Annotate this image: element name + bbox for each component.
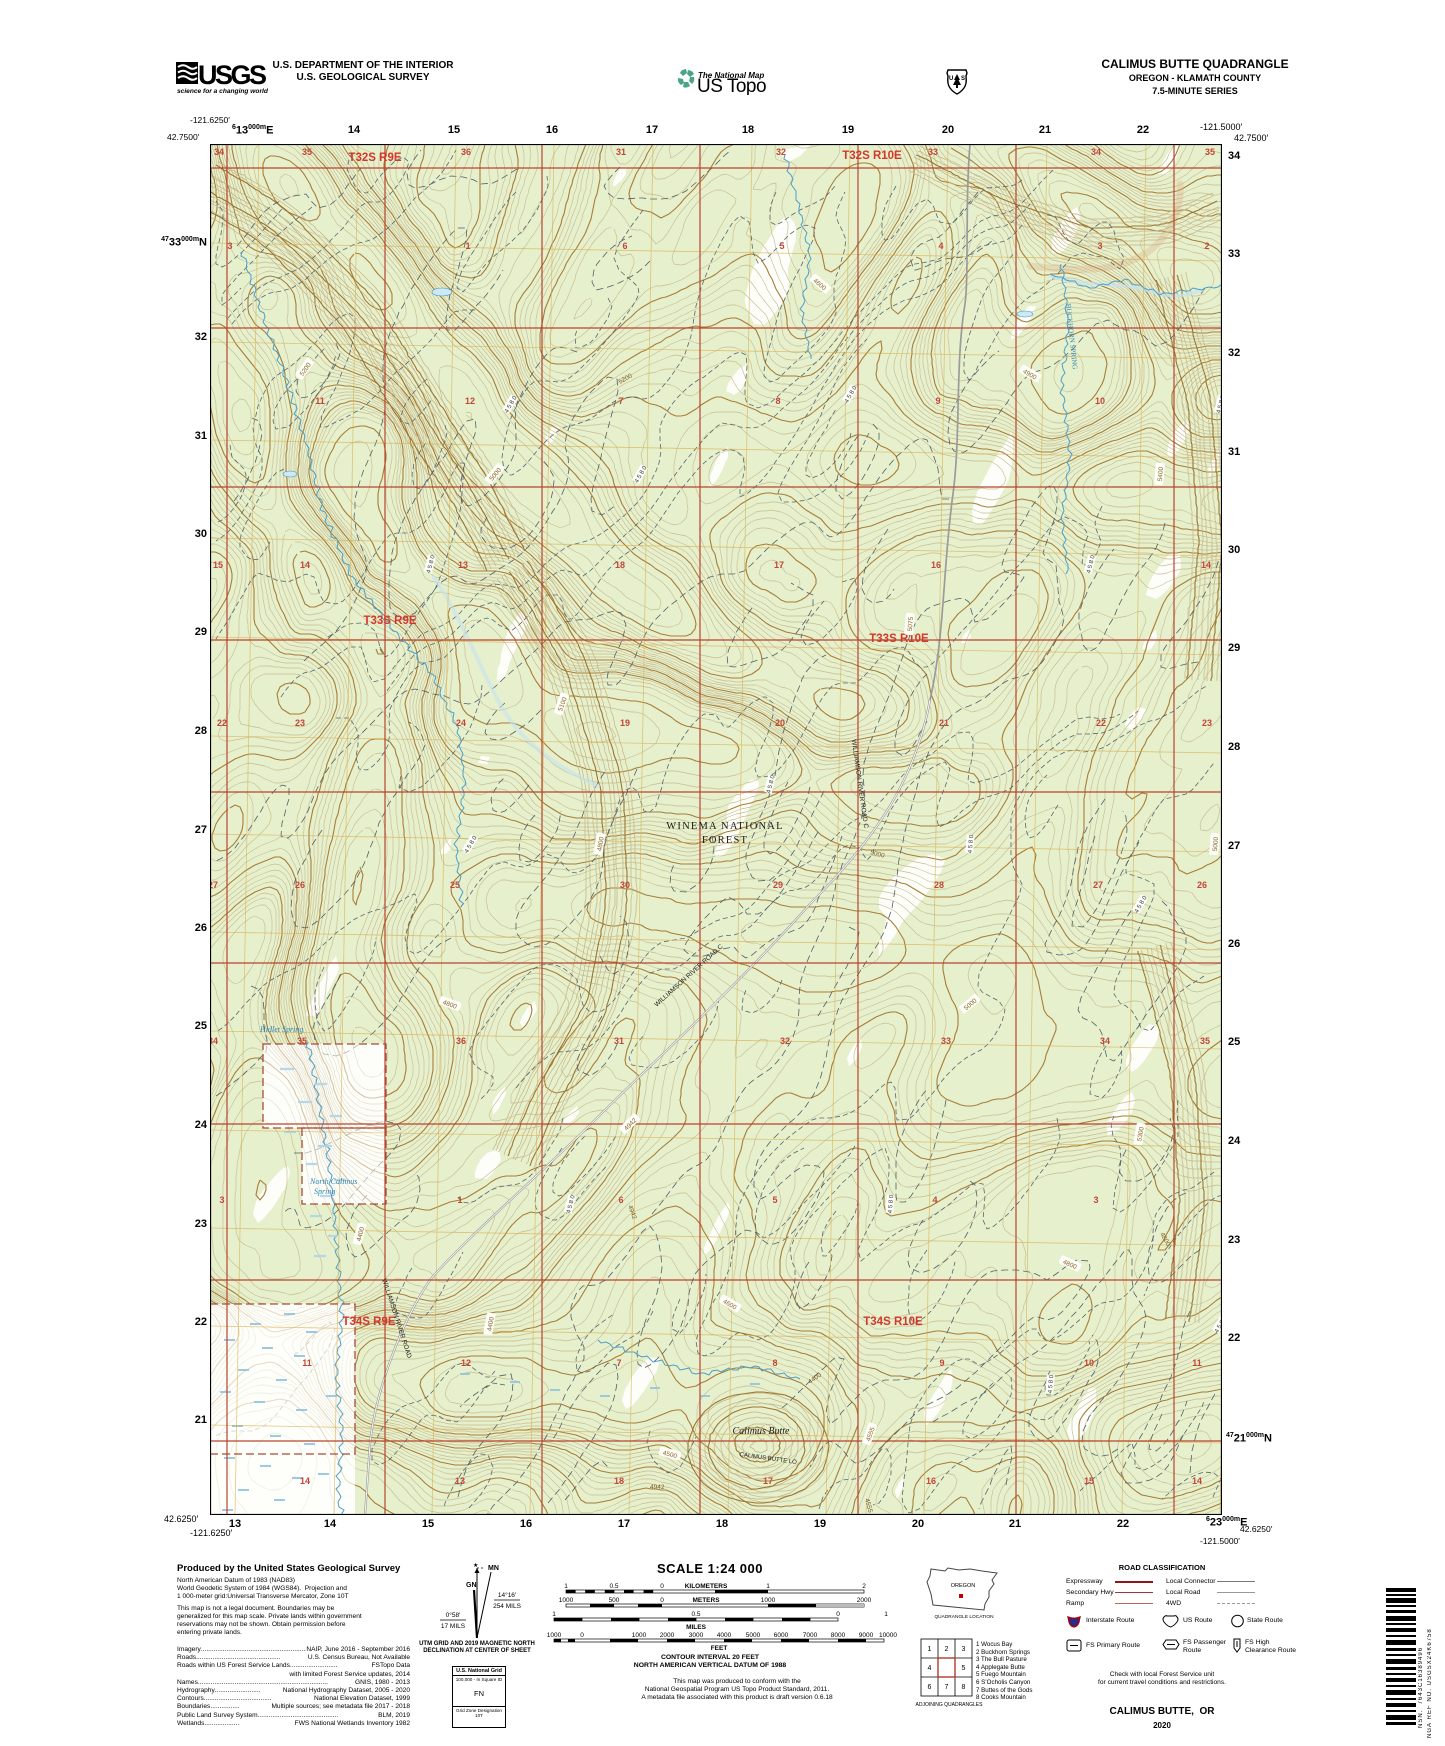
svg-text:1000: 1000	[761, 1597, 776, 1604]
svg-text:5: 5	[779, 241, 784, 251]
svg-text:5400: 5400	[1157, 466, 1165, 481]
svg-text:30: 30	[620, 880, 630, 890]
svg-text:0: 0	[660, 1597, 664, 1604]
svg-text:6: 6	[618, 1195, 623, 1205]
svg-text:13: 13	[455, 1476, 465, 1486]
svg-text:1: 1	[928, 1646, 932, 1653]
svg-text:3: 3	[1093, 1195, 1098, 1205]
svg-text:27: 27	[1093, 880, 1103, 890]
svg-text:11: 11	[315, 396, 325, 406]
svg-text:WINEMA NATIONAL: WINEMA NATIONAL	[666, 821, 783, 832]
svg-text:0.5: 0.5	[691, 1611, 700, 1618]
svg-text:13: 13	[458, 560, 468, 570]
svg-text:4000: 4000	[717, 1632, 732, 1639]
svg-text:T34S R9E: T34S R9E	[342, 1316, 395, 1328]
svg-text:4942: 4942	[650, 1484, 665, 1491]
svg-text:26: 26	[1197, 880, 1207, 890]
svg-text:8: 8	[962, 1684, 966, 1691]
svg-text:FOREST: FOREST	[702, 835, 748, 846]
svg-text:Calimus Butte: Calimus Butte	[733, 1426, 791, 1437]
svg-text:2000: 2000	[660, 1632, 675, 1639]
svg-text:16: 16	[926, 1476, 936, 1486]
svg-text:31: 31	[616, 147, 626, 157]
svg-text:4: 4	[928, 1665, 932, 1672]
svg-text:Spring: Spring	[314, 1187, 335, 1196]
svg-text:T34S R10E: T34S R10E	[863, 1316, 923, 1328]
svg-text:6: 6	[622, 241, 627, 251]
svg-text:10000: 10000	[879, 1632, 897, 1639]
svg-text:0.5: 0.5	[609, 1583, 618, 1590]
svg-text:1000: 1000	[632, 1632, 647, 1639]
svg-text:35: 35	[302, 147, 312, 157]
svg-text:17 MILS: 17 MILS	[441, 1623, 466, 1630]
svg-text:15: 15	[1084, 1476, 1094, 1486]
svg-text:METERS: METERS	[692, 1597, 720, 1604]
svg-text:12: 12	[465, 396, 475, 406]
svg-text:14: 14	[1192, 1476, 1202, 1486]
svg-text:36: 36	[456, 1036, 466, 1046]
svg-text:17: 17	[763, 1476, 773, 1486]
svg-text:10: 10	[1095, 396, 1105, 406]
svg-text:33: 33	[928, 147, 938, 157]
svg-text:18: 18	[615, 560, 625, 570]
svg-text:9: 9	[939, 1358, 944, 1368]
svg-text:3: 3	[227, 241, 232, 251]
svg-text:9000: 9000	[859, 1632, 874, 1639]
svg-text:T32S R10E: T32S R10E	[842, 150, 902, 162]
svg-text:25: 25	[450, 880, 460, 890]
svg-text:14: 14	[300, 1476, 310, 1486]
svg-text:Hidlet Spring: Hidlet Spring	[259, 1025, 303, 1034]
svg-text:23: 23	[295, 718, 305, 728]
svg-text:1: 1	[457, 1195, 462, 1205]
svg-text:2000: 2000	[857, 1597, 872, 1604]
svg-text:8000: 8000	[831, 1632, 846, 1639]
svg-text:U: U	[949, 76, 953, 82]
svg-text:32: 32	[780, 1036, 790, 1046]
svg-text:5075: 5075	[907, 616, 915, 631]
svg-text:14°16′: 14°16′	[498, 1591, 517, 1599]
svg-text:15: 15	[213, 560, 223, 570]
svg-text:34: 34	[1100, 1036, 1110, 1046]
svg-text:4: 4	[932, 1195, 937, 1205]
svg-text:34: 34	[1091, 147, 1101, 157]
svg-text:OREGON: OREGON	[951, 1583, 975, 1589]
svg-text:T32S R9E: T32S R9E	[348, 152, 401, 164]
svg-text:11: 11	[302, 1358, 312, 1368]
svg-text:3: 3	[219, 1195, 224, 1205]
svg-text:3000: 3000	[689, 1632, 704, 1639]
svg-text:2: 2	[1204, 241, 1209, 251]
svg-text:14: 14	[1201, 560, 1211, 570]
svg-text:0: 0	[836, 1611, 840, 1618]
svg-text:10: 10	[1084, 1358, 1094, 1368]
svg-text:1000: 1000	[559, 1597, 574, 1604]
svg-text:35: 35	[1205, 147, 1215, 157]
svg-text:20: 20	[775, 718, 785, 728]
svg-text:7: 7	[945, 1684, 949, 1691]
svg-text:34: 34	[210, 1036, 218, 1046]
svg-text:US Topo: US Topo	[697, 76, 766, 95]
svg-text:1: 1	[884, 1611, 888, 1618]
svg-text:21: 21	[939, 718, 949, 728]
svg-text:22: 22	[1096, 718, 1106, 728]
svg-text:1: 1	[465, 241, 470, 251]
svg-text:11: 11	[1192, 1358, 1202, 1368]
svg-text:33: 33	[941, 1036, 951, 1046]
svg-text:FEET: FEET	[711, 1645, 728, 1652]
svg-text:0°58′: 0°58′	[446, 1611, 461, 1619]
svg-text:6: 6	[928, 1684, 932, 1691]
svg-text:5: 5	[962, 1665, 966, 1672]
svg-text:3: 3	[1097, 241, 1102, 251]
svg-text:22: 22	[217, 718, 227, 728]
svg-text:T33S R10E: T33S R10E	[869, 633, 929, 645]
svg-text:North Calimus: North Calimus	[309, 1177, 357, 1186]
svg-text:26: 26	[295, 880, 305, 890]
svg-text:S: S	[961, 76, 965, 82]
svg-text:7: 7	[616, 1358, 621, 1368]
svg-text:MILES: MILES	[686, 1624, 707, 1631]
svg-text:GN: GN	[466, 1582, 477, 1589]
svg-text:5000: 5000	[746, 1632, 761, 1639]
svg-text:32: 32	[776, 147, 786, 157]
svg-text:KILOMETERS: KILOMETERS	[685, 1583, 728, 1590]
svg-text:7000: 7000	[803, 1632, 818, 1639]
svg-text:18: 18	[614, 1476, 624, 1486]
svg-text:23: 23	[1202, 718, 1212, 728]
svg-text:9: 9	[935, 396, 940, 406]
svg-text:5: 5	[772, 1195, 777, 1205]
svg-text:8: 8	[772, 1358, 777, 1368]
svg-text:31: 31	[614, 1036, 624, 1046]
svg-text:19: 19	[620, 718, 630, 728]
svg-text:14: 14	[300, 560, 310, 570]
svg-text:1000: 1000	[547, 1632, 562, 1639]
svg-text:MN: MN	[488, 1565, 499, 1572]
svg-text:3: 3	[962, 1646, 966, 1653]
svg-text:2: 2	[945, 1646, 949, 1653]
svg-text:35: 35	[297, 1036, 307, 1046]
svg-text:28: 28	[934, 880, 944, 890]
svg-text:29: 29	[773, 880, 783, 890]
svg-text:8: 8	[775, 396, 780, 406]
svg-text:500: 500	[609, 1597, 620, 1604]
svg-text:36: 36	[461, 147, 471, 157]
svg-text:1: 1	[564, 1583, 568, 1590]
svg-text:1: 1	[552, 1611, 556, 1618]
svg-text:0: 0	[660, 1583, 664, 1590]
svg-text:6000: 6000	[774, 1632, 789, 1639]
svg-text:science for a changing world: science for a changing world	[177, 88, 269, 95]
svg-text:7: 7	[618, 396, 623, 406]
svg-text:T33S R9E: T33S R9E	[363, 615, 416, 627]
svg-text:4: 4	[938, 241, 943, 251]
svg-text:12: 12	[461, 1358, 471, 1368]
svg-text:2: 2	[862, 1583, 866, 1590]
svg-text:17: 17	[774, 560, 784, 570]
svg-text:16: 16	[931, 560, 941, 570]
svg-text:5000: 5000	[1212, 836, 1220, 851]
svg-text:254 MILS: 254 MILS	[493, 1603, 521, 1610]
svg-text:35: 35	[1200, 1036, 1210, 1046]
svg-text:1: 1	[766, 1583, 770, 1590]
svg-text:0: 0	[580, 1632, 584, 1639]
svg-text:34: 34	[214, 147, 224, 157]
svg-text:24: 24	[456, 718, 466, 728]
svg-text:27: 27	[210, 880, 218, 890]
